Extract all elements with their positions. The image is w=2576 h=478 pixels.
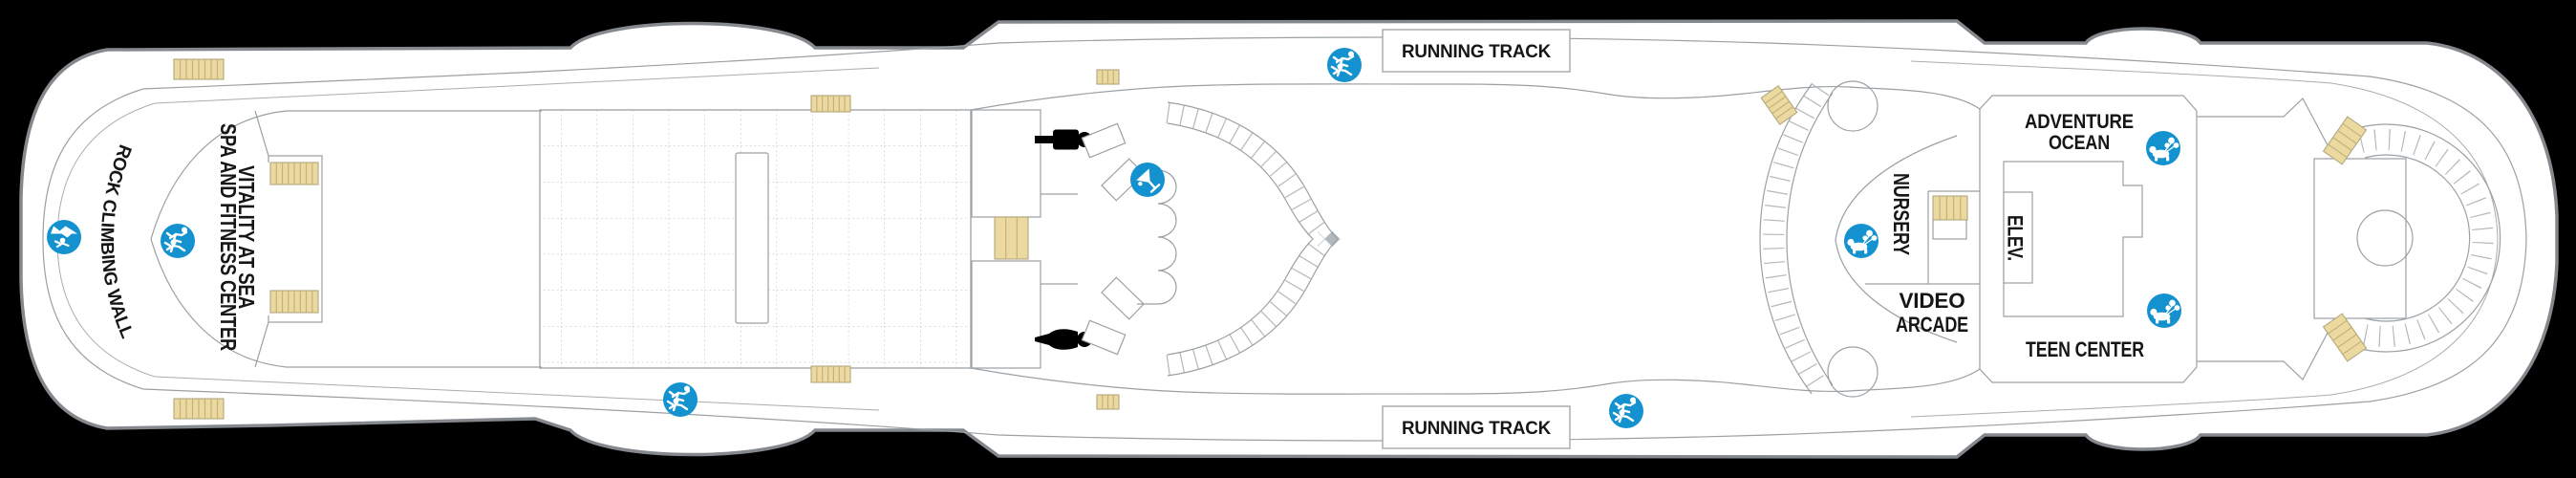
stairs-icon xyxy=(995,217,1028,259)
running-track-label-top: RUNNING TRACK xyxy=(1402,42,1551,62)
martini-glass-icon xyxy=(1130,163,1165,197)
fitness-equipment-area xyxy=(736,153,768,323)
locker-room-top xyxy=(972,110,1041,217)
stairs-icon xyxy=(1933,196,1967,220)
adventure-ocean-label-line1: ADVENTURE xyxy=(2025,111,2134,133)
forward-room xyxy=(2314,159,2406,318)
running-track-runner-icon xyxy=(1327,48,1362,82)
deck-plan-svg: RUNNING TRACK RUNNING TRACK ROCK CLIMBIN… xyxy=(0,0,2576,478)
stairs-icon xyxy=(811,96,850,112)
nursery-children-icon xyxy=(1844,224,1878,258)
spa-label-line2: SPA AND FITNESS CENTER xyxy=(216,123,241,351)
spa-fitness-runner-icon xyxy=(161,224,195,258)
rock-climbing-icon xyxy=(47,220,81,254)
stairs-icon xyxy=(1097,70,1119,84)
running-track-runner-icon xyxy=(1609,394,1643,428)
video-arcade-label-line2: ARCADE xyxy=(1896,313,1968,337)
stairs-icon xyxy=(1097,395,1119,409)
teen-center-label: TEEN CENTER xyxy=(2026,337,2144,361)
stairs-icon xyxy=(811,366,850,382)
stairs-icon xyxy=(174,59,224,79)
stairs-icon xyxy=(270,163,318,185)
locker-room-bottom xyxy=(972,261,1041,368)
elevator-label: ELEV. xyxy=(2004,215,2028,261)
adventure-ocean-label-line2: OCEAN xyxy=(2049,132,2110,154)
running-track-runner-icon xyxy=(663,382,698,417)
teen-center-children-icon xyxy=(2147,293,2181,328)
video-arcade-label-line1: VIDEO xyxy=(1900,289,1965,313)
stair-landing xyxy=(1933,218,1966,239)
deck-plan-canvas: RUNNING TRACK RUNNING TRACK ROCK CLIMBIN… xyxy=(0,0,2576,478)
nursery-label: NURSERY xyxy=(1889,173,1914,255)
stairs-icon xyxy=(174,399,224,419)
stairs-icon xyxy=(270,291,318,313)
running-track-label-bottom: RUNNING TRACK xyxy=(1402,419,1551,439)
adventure-ocean-children-icon xyxy=(2146,131,2180,165)
